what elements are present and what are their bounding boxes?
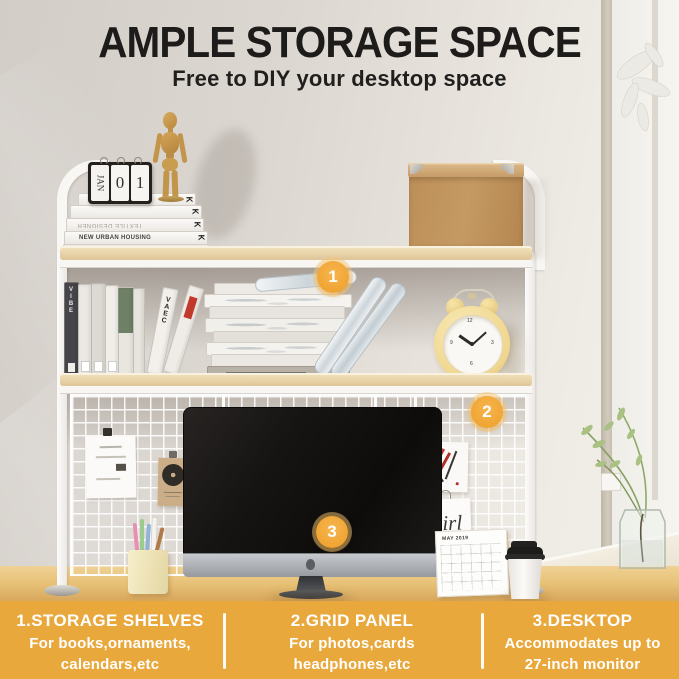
feature-badge-3: 3: [316, 516, 348, 548]
shelf-board-top: [60, 246, 532, 260]
feature-heading: 2.GRID PANEL: [228, 611, 476, 631]
book-label: [108, 361, 117, 372]
calendar-digit: 0: [111, 165, 129, 201]
clock-numeral: 12: [467, 318, 473, 324]
book-edge-letter: K: [185, 197, 194, 203]
flip-calendar: JAN 0 1: [88, 162, 152, 204]
mannequin-head: [163, 112, 177, 129]
book-spine: [91, 283, 106, 376]
book-spine-title: TEXTILE DESIGNER: [77, 222, 142, 228]
shelf-board-middle: [60, 373, 532, 386]
sketch-line: [100, 446, 122, 448]
book-edge-letter: K: [193, 222, 202, 228]
binder-clip: [103, 428, 112, 436]
monitor-screen: [183, 407, 442, 555]
feature-line: For books,ornaments,: [0, 634, 220, 654]
feature-line: For photos,cards: [228, 634, 476, 654]
book-edge-letter: K: [197, 235, 206, 241]
page-title: AMPLE STORAGE SPACE: [27, 18, 652, 68]
mannequin-torso: [161, 132, 179, 154]
feature-line: Accommodates up to: [486, 634, 679, 654]
book-label: [68, 363, 75, 372]
caption-line: [164, 492, 182, 493]
clock-numeral: 9: [450, 340, 453, 346]
feature-badge-1: 1: [317, 261, 349, 293]
feature-desktop: 3.DESKTOP Accommodates up to 27-inch mon…: [486, 609, 679, 676]
pen-green: [140, 519, 144, 553]
book-label: [94, 361, 103, 372]
book-label: [81, 361, 90, 372]
feature-badge-2: 2: [471, 396, 503, 428]
pencil-cup-body: [128, 550, 168, 594]
caption-line: [166, 496, 180, 497]
book-spine-title: VAEC: [160, 296, 172, 325]
apple-logo-icon: [306, 559, 315, 570]
frame-foot-left: [44, 585, 80, 596]
vinyl-record-graphic: [162, 464, 184, 486]
sketch-mark: [116, 464, 126, 471]
calendar-ring: [117, 157, 125, 165]
desk-calendar-grid: [440, 543, 502, 591]
feature-grid-panel: 2.GRID PANEL For photos,cards headphones…: [228, 609, 476, 676]
pinned-sketch-paper: [85, 436, 136, 499]
calendar-ring: [100, 157, 108, 165]
desk-calendar: MAY 2019: [435, 529, 509, 597]
shelf-rim-middle: [60, 386, 532, 394]
desk-calendar-header: MAY 2019: [442, 535, 468, 542]
product-infographic: AMPLE STORAGE SPACE Free to DIY your des…: [0, 0, 679, 679]
mannequin-base: [158, 196, 184, 202]
sketch-line: [96, 478, 120, 480]
clock-numeral: 3: [491, 340, 494, 346]
book-spine: [133, 288, 145, 376]
page-subtitle: Free to DIY your desktop space: [0, 66, 679, 92]
feature-line: 27-inch monitor: [486, 655, 679, 675]
feature-line: headphones,etc: [228, 655, 476, 675]
shelf-rim-top: [60, 260, 532, 268]
glass-vase-with-plant: [565, 390, 679, 575]
mannequin-hips: [162, 158, 178, 171]
feature-band: 1.STORAGE SHELVES For books,ornaments, c…: [0, 601, 679, 679]
clock-knob: [468, 293, 476, 299]
book-spine: [118, 287, 134, 376]
calendar-digit: 1: [131, 165, 149, 201]
feature-storage-shelves: 1.STORAGE SHELVES For books,ornaments, c…: [0, 609, 220, 676]
feature-heading: 1.STORAGE SHELVES: [0, 611, 220, 631]
book-label-red: [183, 296, 197, 319]
book-spine: [105, 285, 119, 376]
book-spine: VIBE: [64, 282, 79, 376]
calendar-ring: [134, 157, 142, 165]
book-edge-letter: K: [191, 209, 200, 215]
book-spine: [78, 284, 92, 376]
cup-body: [507, 559, 543, 599]
feature-line: calendars,etc: [0, 655, 220, 675]
binder-clip: [169, 451, 177, 458]
clock-center-pin: [470, 342, 474, 346]
art-dot: [456, 482, 459, 485]
clock-numeral: 6: [470, 361, 473, 367]
box-body: [409, 177, 523, 249]
feature-heading: 3.DESKTOP: [486, 611, 679, 631]
band-divider: [223, 613, 226, 669]
book-spine-title: NEW URBAN HOUSING: [79, 235, 151, 241]
book-spine-title: VIBE: [68, 287, 74, 315]
calendar-month: JAN: [95, 175, 105, 192]
band-divider: [481, 613, 484, 669]
calendar-month-card: JAN: [91, 165, 109, 201]
sketch-line: [96, 456, 126, 458]
